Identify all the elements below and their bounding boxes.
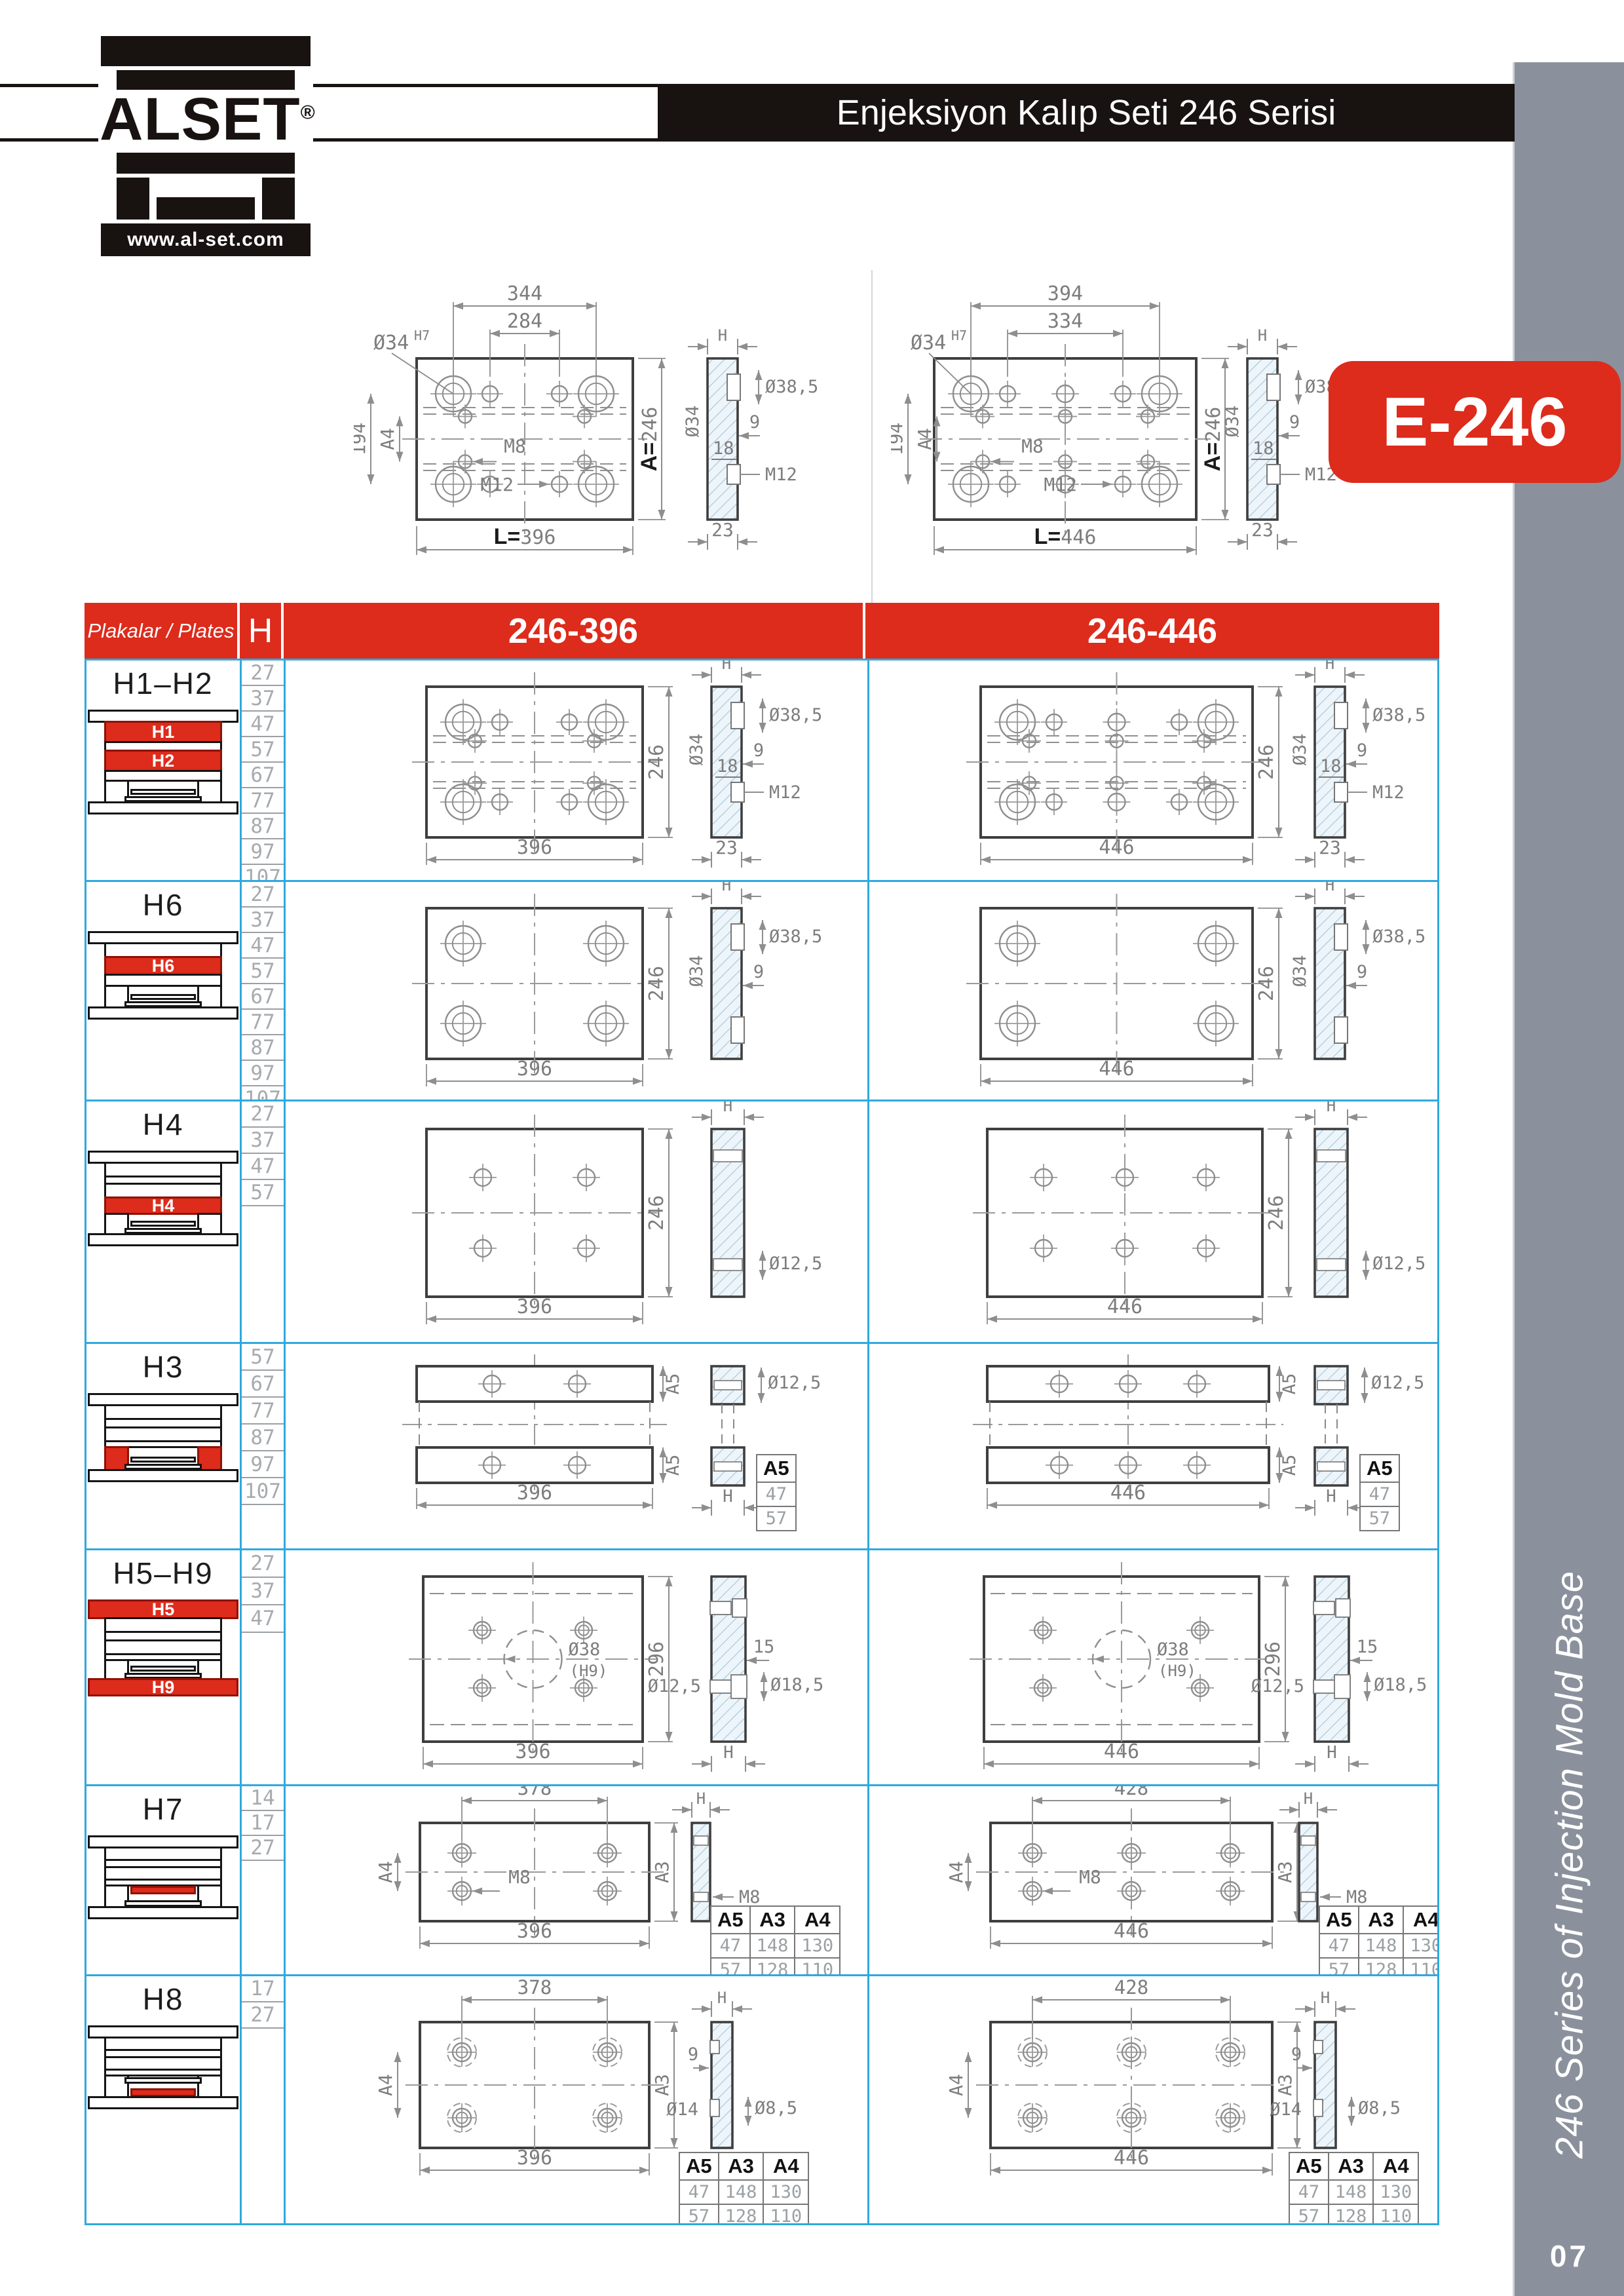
size-table-value: 110	[1373, 2204, 1418, 2223]
size-table-value: 57	[711, 1958, 750, 1974]
size-table-header: A3	[719, 2152, 764, 2180]
size-table-value: 128	[1359, 1958, 1404, 1974]
svg-text:A5: A5	[1279, 1455, 1300, 1476]
mold-stack-icon: H5H9	[88, 1599, 238, 1696]
svg-text:L=446: L=446	[1034, 524, 1097, 549]
technical-drawing: A5A5446Ø12,5H	[869, 1344, 1437, 1542]
svg-text:(H9): (H9)	[1158, 1662, 1196, 1680]
table-row-h6: H6H62737475767778797107396246HØ34Ø38,594…	[86, 880, 1437, 1100]
svg-text:H: H	[718, 326, 727, 345]
size-table-value: 47	[711, 1934, 750, 1958]
size-table-header: A3	[1359, 1906, 1404, 1934]
svg-text:194: 194	[891, 423, 907, 456]
size-table-value: 130	[795, 1934, 840, 1958]
size-table: A5A3A44714813057128110	[1289, 2152, 1419, 2223]
svg-text:9: 9	[1289, 412, 1300, 432]
highlighted-plate: H6	[104, 956, 222, 976]
svg-text:Ø38,5: Ø38,5	[765, 377, 818, 397]
mold-stack-icon: H4	[88, 1151, 238, 1246]
drawing-cell-446: 446246HØ12,5	[869, 1101, 1437, 1342]
overview-drawing-396: 344284Ø34H7194A4M8M12L=396A=246HØ34Ø38,5…	[354, 272, 852, 609]
size-table-value: 57	[757, 1506, 796, 1531]
svg-text:Ø12,5: Ø12,5	[1251, 1676, 1304, 1696]
svg-text:A5: A5	[663, 1455, 683, 1476]
technical-drawing: Ø38(H9)39629615Ø12,5Ø18,5H	[286, 1550, 865, 1778]
h-value: 47	[242, 933, 284, 959]
svg-text:Ø34: Ø34	[687, 955, 707, 987]
size-table: A54757	[1359, 1454, 1400, 1531]
drawing-cell-396: A5A5396Ø12,5HA54757	[286, 1344, 869, 1548]
row-title: H4	[86, 1107, 240, 1142]
svg-text:H: H	[1321, 1989, 1330, 2007]
drawing-cell-396: 396246HØ34Ø38,5918M1223	[286, 660, 869, 880]
size-table: A5A3A44714813057128110	[710, 1905, 840, 1974]
svg-text:A3: A3	[1274, 1861, 1296, 1883]
h-value: 67	[242, 763, 284, 788]
svg-text:396: 396	[517, 2147, 552, 2170]
svg-text:Ø34: Ø34	[1290, 734, 1310, 766]
svg-text:Ø34: Ø34	[1290, 955, 1310, 987]
h-value: 37	[242, 686, 284, 712]
svg-text:H: H	[722, 882, 731, 894]
svg-text:18: 18	[1320, 756, 1342, 776]
size-table-value: 110	[795, 1958, 840, 1974]
h-column-cell: 141727	[242, 1786, 286, 1974]
h-value: 27	[242, 1101, 284, 1128]
size-table-header: A5	[757, 1455, 796, 1482]
svg-text:H: H	[722, 660, 731, 673]
svg-text:9: 9	[1357, 740, 1367, 761]
svg-text:23: 23	[1319, 837, 1341, 858]
column-divider-line	[871, 270, 873, 603]
svg-text:9: 9	[749, 412, 760, 432]
technical-drawing: 446246HØ12,5	[869, 1101, 1437, 1336]
svg-text:M8: M8	[508, 1866, 531, 1888]
svg-text:(H9): (H9)	[570, 1662, 608, 1680]
svg-text:H7: H7	[414, 328, 430, 343]
svg-text:23: 23	[711, 519, 734, 541]
svg-text:246: 246	[645, 1195, 668, 1231]
size-table-value: 148	[719, 2180, 764, 2204]
svg-text:M8: M8	[1079, 1866, 1101, 1888]
svg-text:M12: M12	[769, 782, 801, 803]
h-column-cell: 1727	[242, 1976, 286, 2223]
size-table-value: 57	[1289, 2204, 1329, 2223]
drawing-cell-396: 378A4A3M8396HM8A5A3A44714813057128110	[286, 1786, 869, 1974]
svg-text:A4: A4	[945, 2074, 967, 2096]
svg-text:H: H	[1325, 882, 1334, 894]
svg-text:M12: M12	[1372, 782, 1405, 803]
svg-text:Ø38,5: Ø38,5	[1372, 705, 1426, 725]
h-value: 47	[242, 1605, 284, 1633]
size-table-value: 47	[1360, 1482, 1399, 1506]
svg-text:296: 296	[1262, 1641, 1285, 1677]
technical-drawing: 446246HØ34Ø38,59	[869, 882, 1437, 1094]
svg-text:Ø34: Ø34	[683, 406, 703, 438]
svg-text:446: 446	[1114, 2147, 1149, 2170]
logo-website: www.al-set.com	[101, 223, 311, 256]
svg-text:M8: M8	[1021, 435, 1044, 457]
size-table-value: 47	[757, 1482, 796, 1506]
svg-text:H: H	[723, 1487, 733, 1506]
svg-text:H: H	[1258, 326, 1267, 345]
mold-stack-icon: H6	[88, 931, 238, 1020]
drawing-cell-446: 446246HØ34Ø38,59	[869, 882, 1437, 1100]
svg-text:M12: M12	[1044, 474, 1077, 495]
h-value: 77	[242, 788, 284, 814]
svg-text:396: 396	[517, 1058, 552, 1081]
row-title: H3	[86, 1349, 240, 1385]
h-value: 87	[242, 1425, 284, 1451]
h-values-column: 2737475767778797107	[242, 660, 284, 880]
svg-text:15: 15	[753, 1637, 775, 1657]
size-table-header: A4	[1373, 2152, 1418, 2180]
svg-text:18: 18	[713, 438, 734, 459]
svg-text:M8: M8	[504, 435, 526, 457]
h-values-column: 27374757	[242, 1101, 284, 1206]
header-col-246-396: 246-396	[284, 603, 863, 659]
svg-text:L=396: L=396	[494, 524, 556, 549]
svg-text:246: 246	[1255, 966, 1278, 1001]
svg-text:194: 194	[354, 423, 369, 456]
h-values-column: 2737475767778797107	[242, 882, 284, 1100]
table-row-h5h9: H5–H9H5H9273747Ø38(H9)39629615Ø12,5Ø18,5…	[86, 1548, 1437, 1784]
h-value: 37	[242, 908, 284, 933]
svg-text:H: H	[1327, 1101, 1336, 1115]
highlighted-plate: H1	[104, 721, 222, 743]
registered-mark: ®	[301, 102, 316, 123]
svg-text:394: 394	[1048, 282, 1083, 305]
svg-text:H: H	[696, 1789, 706, 1808]
h-column-cell: 2737475767778797107	[242, 660, 286, 880]
h-value: 87	[242, 1035, 284, 1061]
h-values-column: 273747	[242, 1550, 284, 1633]
row-title: H5–H9	[86, 1556, 240, 1591]
size-table: A5A3A44714813057128110	[679, 2152, 809, 2223]
row-title: H6	[86, 887, 240, 923]
h-value: 57	[242, 1344, 284, 1371]
plate-label-cell: H5–H9H5H9	[86, 1550, 242, 1784]
technical-drawing: 396246HØ34Ø38,59	[286, 882, 865, 1094]
svg-text:M12: M12	[480, 474, 514, 495]
svg-text:H: H	[717, 1989, 727, 2007]
row-title: H1–H2	[86, 666, 240, 701]
size-table-value: 47	[1289, 2180, 1329, 2204]
overview-drawing-446: 394334Ø34H7194A4M8M12L=446A=246HØ34Ø38,5…	[891, 272, 1389, 609]
h-column-cell: 27374757	[242, 1101, 286, 1342]
svg-text:Ø34: Ø34	[911, 332, 946, 354]
h-value: 97	[242, 1061, 284, 1086]
size-table-header: A3	[1329, 2152, 1374, 2180]
svg-text:A4: A4	[377, 428, 398, 450]
svg-text:Ø12,5: Ø12,5	[769, 1253, 822, 1274]
svg-text:396: 396	[515, 1740, 550, 1763]
technical-drawing: 396246HØ34Ø38,5918M1223	[286, 660, 865, 872]
size-table-value: 148	[1329, 2180, 1374, 2204]
h-value: 107	[242, 1478, 284, 1505]
size-table-value: 128	[719, 2204, 764, 2223]
svg-text:A3: A3	[651, 2074, 673, 2096]
logo-bar	[117, 153, 295, 174]
mold-stack-icon	[88, 1835, 238, 1919]
h-value: 57	[242, 737, 284, 763]
svg-text:A4: A4	[945, 1861, 967, 1883]
svg-text:Ø12,5: Ø12,5	[768, 1373, 821, 1393]
svg-text:246: 246	[1255, 744, 1278, 780]
size-table-header: A4	[1403, 1906, 1437, 1934]
svg-text:Ø8,5: Ø8,5	[755, 2098, 797, 2118]
svg-text:18: 18	[717, 756, 738, 776]
size-table-value: 130	[1373, 2180, 1418, 2204]
svg-text:446: 446	[1110, 1482, 1146, 1504]
svg-text:M8: M8	[739, 1887, 761, 1907]
plate-label-cell: H6H6	[86, 882, 242, 1100]
size-table-header: A5	[1319, 1906, 1359, 1934]
highlighted-plate: H5	[88, 1599, 238, 1619]
h-value: 57	[242, 959, 284, 984]
svg-text:H: H	[723, 1101, 732, 1115]
size-table-value: 57	[1360, 1506, 1399, 1531]
h-value: 27	[242, 882, 284, 908]
svg-text:446: 446	[1107, 1295, 1142, 1318]
size-table-header: A4	[763, 2152, 808, 2180]
h-value: 67	[242, 984, 284, 1010]
size-table-header: A3	[750, 1906, 795, 1934]
plate-label-cell: H3	[86, 1344, 242, 1548]
h-value: 107	[242, 865, 284, 880]
drawing-cell-396: 378A4A3396H9Ø14Ø8,5A5A3A4471481305712811…	[286, 1976, 869, 2223]
svg-text:334: 334	[1048, 310, 1083, 333]
svg-text:9: 9	[753, 740, 764, 761]
svg-text:18: 18	[1253, 438, 1274, 459]
table-row-h1h2: H1–H2H1H22737475767778797107396246HØ34Ø3…	[86, 660, 1437, 880]
drawing-cell-446: 428A4A3M8446HM8A5A3A44714813057128110	[869, 1786, 1437, 1974]
svg-text:9: 9	[1291, 2044, 1302, 2065]
svg-text:A4: A4	[375, 1861, 396, 1883]
svg-text:9: 9	[1357, 962, 1367, 982]
svg-text:H: H	[1326, 1487, 1336, 1506]
sidebar-vertical-title: 246 Series of Injection Mold Base	[1547, 1571, 1591, 2158]
size-table: A54757	[756, 1454, 797, 1531]
logo-bar	[101, 36, 311, 66]
h-value: 37	[242, 1128, 284, 1154]
svg-text:Ø12,5: Ø12,5	[1371, 1373, 1424, 1393]
drawing-cell-446: A5A5446Ø12,5HA54757	[869, 1344, 1437, 1548]
size-table-value: 128	[750, 1958, 795, 1974]
svg-text:446: 446	[1099, 1058, 1134, 1081]
table-row-h7: H7141727378A4A3M8396HM8A5A3A447148130571…	[86, 1784, 1437, 1974]
header-h-label: H	[240, 603, 281, 659]
technical-drawing: 394334Ø34H7194A4M8M12L=446A=246HØ34Ø38,5…	[891, 272, 1389, 607]
page-number: 07	[1515, 2238, 1624, 2274]
h-value: 47	[242, 712, 284, 737]
highlighted-plate: H4	[104, 1196, 222, 1215]
highlighted-plate: H9	[88, 1678, 238, 1696]
table-body: H1–H2H1H22737475767778797107396246HØ34Ø3…	[85, 659, 1439, 2225]
h-column-cell: 2737475767778797107	[242, 882, 286, 1100]
h-value: 27	[242, 1550, 284, 1578]
mold-stack-icon: H1H2	[88, 710, 238, 814]
drawing-cell-446: Ø38(H9)44629615Ø12,5Ø18,5H	[869, 1550, 1437, 1784]
svg-text:A5: A5	[1279, 1373, 1300, 1395]
svg-text:246: 246	[1265, 1195, 1288, 1231]
table-header-row: Plakalar / Plates H 246-396 246-446	[85, 603, 1439, 659]
h-value: 107	[242, 1086, 284, 1100]
size-table-header: A4	[795, 1906, 840, 1934]
technical-drawing: 344284Ø34H7194A4M8M12L=396A=246HØ34Ø38,5…	[354, 272, 852, 607]
h-values-column: 141727	[242, 1786, 284, 1861]
svg-text:H: H	[1304, 1789, 1313, 1808]
svg-text:396: 396	[517, 836, 552, 859]
h-value: 47	[242, 1154, 284, 1180]
svg-text:296: 296	[645, 1641, 668, 1677]
size-table-value: 128	[1329, 2204, 1374, 2223]
size-table-value: 148	[1359, 1934, 1404, 1958]
size-table-value: 130	[1403, 1934, 1437, 1958]
row-title: H7	[86, 1791, 240, 1827]
svg-text:Ø12,5: Ø12,5	[648, 1676, 701, 1696]
svg-text:Ø18,5: Ø18,5	[1374, 1675, 1427, 1695]
svg-text:9: 9	[753, 962, 764, 982]
plate-label-cell: H7	[86, 1786, 242, 1974]
svg-text:Ø14: Ø14	[666, 2099, 698, 2120]
svg-text:A=246: A=246	[637, 407, 662, 472]
h-value: 17	[242, 1811, 284, 1836]
h-value: 67	[242, 1371, 284, 1398]
alset-logo: ALSET® www.al-set.com	[98, 36, 313, 256]
h-value: 87	[242, 814, 284, 839]
plate-label-cell: H8	[86, 1976, 242, 2223]
plate-label-cell: H1–H2H1H2	[86, 660, 242, 880]
svg-text:446: 446	[1104, 1740, 1139, 1763]
header-plates-label: Plakalar / Plates	[85, 603, 237, 659]
svg-text:A5: A5	[663, 1373, 683, 1395]
size-table-header: A5	[711, 1906, 750, 1934]
table-row-h8: H81727378A4A3396H9Ø14Ø8,5A5A3A4471481305…	[86, 1974, 1437, 2223]
h-values-column: 1727	[242, 1976, 284, 2029]
technical-drawing: 446246HØ34Ø38,5918M1223	[869, 660, 1437, 872]
svg-text:H: H	[1325, 660, 1334, 673]
h-value: 77	[242, 1398, 284, 1425]
svg-text:Ø34: Ø34	[1222, 406, 1243, 438]
svg-text:A3: A3	[1274, 2074, 1296, 2096]
mold-stack-icon	[88, 1393, 238, 1482]
svg-text:428: 428	[1114, 1976, 1148, 1999]
h-values-column: 5767778797107	[242, 1344, 284, 1505]
plates-table: Plakalar / Plates H 246-396 246-446 H1–H…	[85, 603, 1439, 2225]
logo-mold-icon	[117, 178, 295, 220]
svg-text:A4: A4	[914, 428, 935, 450]
svg-text:378: 378	[518, 1786, 552, 1799]
technical-drawing: Ø38(H9)44629615Ø12,5Ø18,5H	[869, 1550, 1437, 1778]
h-value: 97	[242, 839, 284, 865]
highlighted-plate: H2	[104, 750, 222, 772]
svg-text:23: 23	[715, 837, 738, 858]
size-table-value: 47	[1319, 1934, 1359, 1958]
svg-text:15: 15	[1357, 1637, 1378, 1657]
size-table-value: 57	[1319, 1958, 1359, 1974]
svg-text:428: 428	[1114, 1786, 1148, 1799]
drawing-cell-396: 396246HØ34Ø38,59	[286, 882, 869, 1100]
size-table: A5A3A44714813057128110	[1319, 1905, 1437, 1974]
svg-text:Ø8,5: Ø8,5	[1358, 2098, 1401, 2118]
h-column-cell: 273747	[242, 1550, 286, 1784]
drawing-cell-446: 428A4A3446H9Ø14Ø8,5A5A3A4471481305712811…	[869, 1976, 1437, 2223]
svg-text:Ø38: Ø38	[569, 1639, 601, 1660]
catalog-page: 246 Series of Injection Mold Base 07 Enj…	[0, 0, 1624, 2296]
size-table-value: 110	[763, 2204, 808, 2223]
svg-text:246: 246	[645, 744, 668, 780]
drawing-cell-446: 446246HØ34Ø38,5918M1223	[869, 660, 1437, 880]
svg-text:A4: A4	[375, 2074, 396, 2096]
svg-text:M12: M12	[765, 465, 797, 485]
size-table-value: 57	[679, 2204, 719, 2223]
svg-text:H: H	[1327, 1743, 1337, 1763]
h-value: 97	[242, 1451, 284, 1478]
h-value: 17	[242, 1976, 284, 2002]
logo-brand-text: ALSET®	[100, 90, 312, 149]
page-title: Enjeksiyon Kalıp Seti 246 Serisi	[837, 92, 1336, 133]
svg-text:246: 246	[645, 966, 668, 1001]
svg-text:Ø34: Ø34	[373, 332, 409, 354]
svg-text:23: 23	[1251, 519, 1274, 541]
svg-text:Ø18,5: Ø18,5	[770, 1675, 823, 1695]
drawing-cell-396: 396246HØ12,5	[286, 1101, 869, 1342]
svg-text:396: 396	[517, 1920, 552, 1943]
svg-text:446: 446	[1114, 1920, 1149, 1943]
svg-text:Ø38,5: Ø38,5	[769, 927, 822, 947]
svg-text:396: 396	[517, 1295, 552, 1318]
h-value: 27	[242, 2002, 284, 2029]
svg-text:H7: H7	[951, 328, 967, 343]
size-table-header: A5	[1289, 2152, 1329, 2180]
table-row-h4: H4H427374757396246HØ12,5446246HØ12,5	[86, 1100, 1437, 1342]
svg-text:378: 378	[518, 1976, 552, 1999]
technical-drawing: 396246HØ12,5	[286, 1101, 865, 1336]
h-value: 27	[242, 1836, 284, 1861]
svg-text:M8: M8	[1346, 1887, 1368, 1907]
mold-stack-icon	[88, 2025, 238, 2109]
h-value: 27	[242, 660, 284, 686]
svg-text:344: 344	[507, 282, 542, 305]
svg-text:Ø38,5: Ø38,5	[769, 705, 822, 725]
header-title-bar: Enjeksiyon Kalıp Seti 246 Serisi	[658, 87, 1515, 138]
product-code-badge: E-246	[1329, 361, 1621, 483]
svg-text:A=246: A=246	[1200, 407, 1225, 472]
h-value: 14	[242, 1786, 284, 1811]
table-row-h3: H35767778797107A5A5396Ø12,5HA54757A5A544…	[86, 1342, 1437, 1548]
size-table-header: A5	[1360, 1455, 1399, 1482]
svg-text:Ø12,5: Ø12,5	[1372, 1253, 1426, 1274]
svg-text:446: 446	[1099, 836, 1134, 859]
size-table-value: 130	[763, 2180, 808, 2204]
header-col-246-446: 246-446	[865, 603, 1439, 659]
svg-text:9: 9	[688, 2044, 698, 2065]
drawing-cell-396: Ø38(H9)39629615Ø12,5Ø18,5H	[286, 1550, 869, 1784]
h-value: 57	[242, 1180, 284, 1206]
h-value: 37	[242, 1578, 284, 1605]
svg-text:Ø38: Ø38	[1157, 1639, 1189, 1660]
size-table-value: 47	[679, 2180, 719, 2204]
h-value: 77	[242, 1010, 284, 1035]
svg-text:Ø38,5: Ø38,5	[1372, 927, 1426, 947]
svg-text:Ø34: Ø34	[687, 734, 707, 766]
svg-text:A3: A3	[651, 1861, 673, 1883]
size-table-header: A5	[679, 2152, 719, 2180]
size-table-value: 110	[1403, 1958, 1437, 1974]
size-table-value: 148	[750, 1934, 795, 1958]
svg-text:284: 284	[507, 310, 542, 333]
